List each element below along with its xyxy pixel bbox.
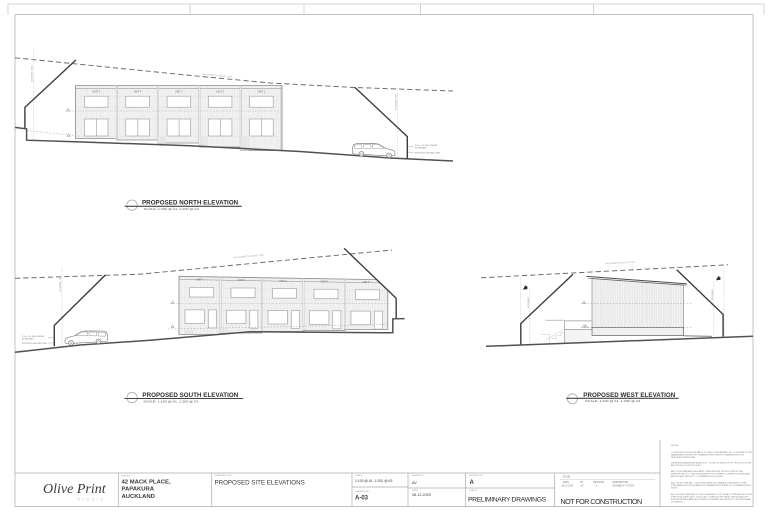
svg-text:ISSUE: ISSUE [563, 476, 571, 479]
svg-text:CONSTRUCTION DETAILS TO BE CON: CONSTRUCTION DETAILS TO BE CONFIRMED BY … [671, 451, 753, 454]
svg-text:PROJECT: PROJECT [122, 476, 133, 478]
svg-text:AV: AV [412, 481, 417, 485]
svg-text:DESCRIPTION: DESCRIPTION [613, 482, 629, 484]
svg-text:BOUNDARY LINE: BOUNDARY LINE [395, 93, 398, 110]
svg-text:BOUNDARY LINE: BOUNDARY LINE [59, 275, 62, 292]
svg-text:UNIT 3: UNIT 3 [279, 280, 287, 283]
svg-text:08.12.2020: 08.12.2020 [412, 493, 431, 497]
svg-text:PREPARED BY ENGINEER'S DRAWING: PREPARED BY ENGINEER'S DRAWINGS PRIOR TO… [671, 484, 751, 487]
svg-text:DRAWING TITLE: DRAWING TITLE [215, 474, 233, 477]
svg-text:AV: AV [581, 485, 584, 488]
svg-text:DATE: DATE [563, 481, 569, 484]
svg-text:CONSENTS: CONSENTS [671, 502, 683, 504]
svg-text:WORK: WORK [671, 488, 678, 490]
svg-text:DRAWN BY: DRAWN BY [412, 474, 424, 477]
svg-text:UNIT 2: UNIT 2 [238, 279, 246, 282]
svg-text:UNIT 1: UNIT 1 [196, 279, 204, 282]
svg-text:ALL ELECTRICAL, LIGHTING AND P: ALL ELECTRICAL, LIGHTING AND PLUMBING DE… [671, 481, 748, 484]
svg-text:BOUNDARY: BOUNDARY [527, 296, 530, 308]
svg-text:UNIT 4: UNIT 4 [321, 281, 329, 284]
svg-text:NOTES:: NOTES: [671, 445, 679, 447]
svg-text:BOUNDARY: BOUNDARY [711, 288, 714, 300]
svg-text:EXISTING GROUND LINE: EXISTING GROUND LINE [415, 153, 440, 155]
svg-text:THE BUILDING ACT 2004, ALL STA: THE BUILDING ACT 2004, ALL STATUTORY AND… [671, 495, 750, 498]
svg-text:REPORTED TO THE DESIGNER FOR T: REPORTED TO THE DESIGNER FOR THEIR CORRE… [671, 472, 751, 475]
svg-text:UNIT 1: UNIT 1 [258, 91, 266, 94]
svg-text:PRELIMINARY DRAWINGS: PRELIMINARY DRAWINGS [468, 497, 547, 504]
svg-text:MAX PERMITTED HEIGHT LIMIT: MAX PERMITTED HEIGHT LIMIT [202, 73, 233, 79]
svg-text:UNIT 4: UNIT 4 [134, 91, 142, 94]
svg-text:AUTHORITIES AND BUILDING CONSE: AUTHORITIES AND BUILDING CONSENT AUTHORI… [671, 498, 752, 501]
svg-text:UNIT 5: UNIT 5 [92, 91, 100, 94]
svg-text:42 MACK PLACE,: 42 MACK PLACE, [122, 480, 171, 486]
svg-text:APPROVAL PRIOR TO COMMENCING W: APPROVAL PRIOR TO COMMENCING WORK [671, 475, 724, 478]
svg-text:1:100 @ A1, 1:200 @ A3: 1:100 @ A1, 1:200 @ A3 [355, 479, 393, 483]
svg-text:A: A [596, 485, 598, 488]
svg-text:MANUFACTURER BY SUBMITTING SHO: MANUFACTURER BY SUBMITTING SHOP DRAWINGS… [671, 453, 745, 456]
svg-text:PROPOSED SITE ELEVATIONS: PROPOSED SITE ELEVATIONS [215, 480, 305, 487]
svg-text:MAX PERMITTED HEIGHT LIMIT: MAX PERMITTED HEIGHT LIMIT [605, 261, 636, 266]
svg-text:UNIT 2: UNIT 2 [216, 91, 224, 94]
svg-text:DESIGNER'S APPROVAL: DESIGNER'S APPROVAL [671, 456, 696, 459]
svg-text:BOUNDARY: BOUNDARY [415, 146, 427, 149]
svg-text:EXISTING GROUND LINE: EXISTING GROUND LINE [22, 343, 47, 345]
svg-text:Olive Print: Olive Print [43, 482, 107, 497]
svg-text:STATUS: STATUS [469, 489, 478, 492]
svg-text:AND PRODUCTION PROCESS: AND PRODUCTION PROCESS [671, 464, 701, 467]
svg-text:AUCKLAND: AUCKLAND [122, 494, 155, 500]
svg-text:PROPOSED SOUTH ELEVATION: PROPOSED SOUTH ELEVATION [142, 392, 238, 399]
svg-text:STUDIO: STUDIO [77, 497, 105, 502]
svg-text:UNIT 5: UNIT 5 [362, 281, 370, 284]
svg-text:BOUNDARY LINE: BOUNDARY LINE [31, 65, 34, 82]
svg-text:08.12.2020: 08.12.2020 [562, 486, 574, 488]
svg-text:DRAWING NO: DRAWING NO [355, 490, 370, 493]
svg-text:SCALE: 1:100 @ A1, 1:200 @ A3: SCALE: 1:100 @ A1, 1:200 @ A3 [144, 207, 199, 211]
svg-text:SCALE: 1:100 @ A1, 1:200 @ A3: SCALE: 1:100 @ A1, 1:200 @ A3 [143, 399, 198, 403]
svg-text:PAPAKURA: PAPAKURA [122, 487, 155, 493]
svg-text:SCALE: SCALE [355, 474, 363, 477]
svg-text:REVISION NO: REVISION NO [469, 475, 484, 477]
svg-text:MAX PERMITTED HEIGHT LIMIT: MAX PERMITTED HEIGHT LIMIT [234, 254, 265, 260]
svg-text:BY: BY [581, 482, 585, 484]
svg-text:UNIT 3: UNIT 3 [175, 91, 183, 94]
svg-text:BOUNDARY: BOUNDARY [22, 337, 34, 340]
svg-text:ALL WORK SHOWN TO BE CARRIED O: ALL WORK SHOWN TO BE CARRIED OUT IN ACCO… [671, 493, 753, 496]
svg-text:FEASIBILITY STUDY: FEASIBILITY STUDY [612, 485, 635, 488]
svg-text:ALL DISCREPANCIES AND OMISSION: ALL DISCREPANCIES AND OMISSIONS IN SITE … [671, 470, 744, 473]
svg-text:SCALE: 1:100 @ A1, 1:200 @ A3: SCALE: 1:100 @ A1, 1:200 @ A3 [585, 399, 640, 403]
svg-text:PROPOSED NORTH ELEVATION: PROPOSED NORTH ELEVATION [142, 200, 239, 207]
svg-text:A-03: A-03 [355, 496, 369, 502]
svg-text:REVISION: REVISION [593, 482, 604, 484]
svg-text:DESIGN/DRAWINGS ARE NOT TO BE: DESIGN/DRAWINGS ARE NOT TO BE SCALED FOR… [671, 462, 752, 465]
svg-text:NOT FOR CONSTRUCTION: NOT FOR CONSTRUCTION [561, 497, 642, 506]
svg-text:DATE: DATE [412, 489, 418, 492]
svg-text:A: A [470, 480, 475, 486]
